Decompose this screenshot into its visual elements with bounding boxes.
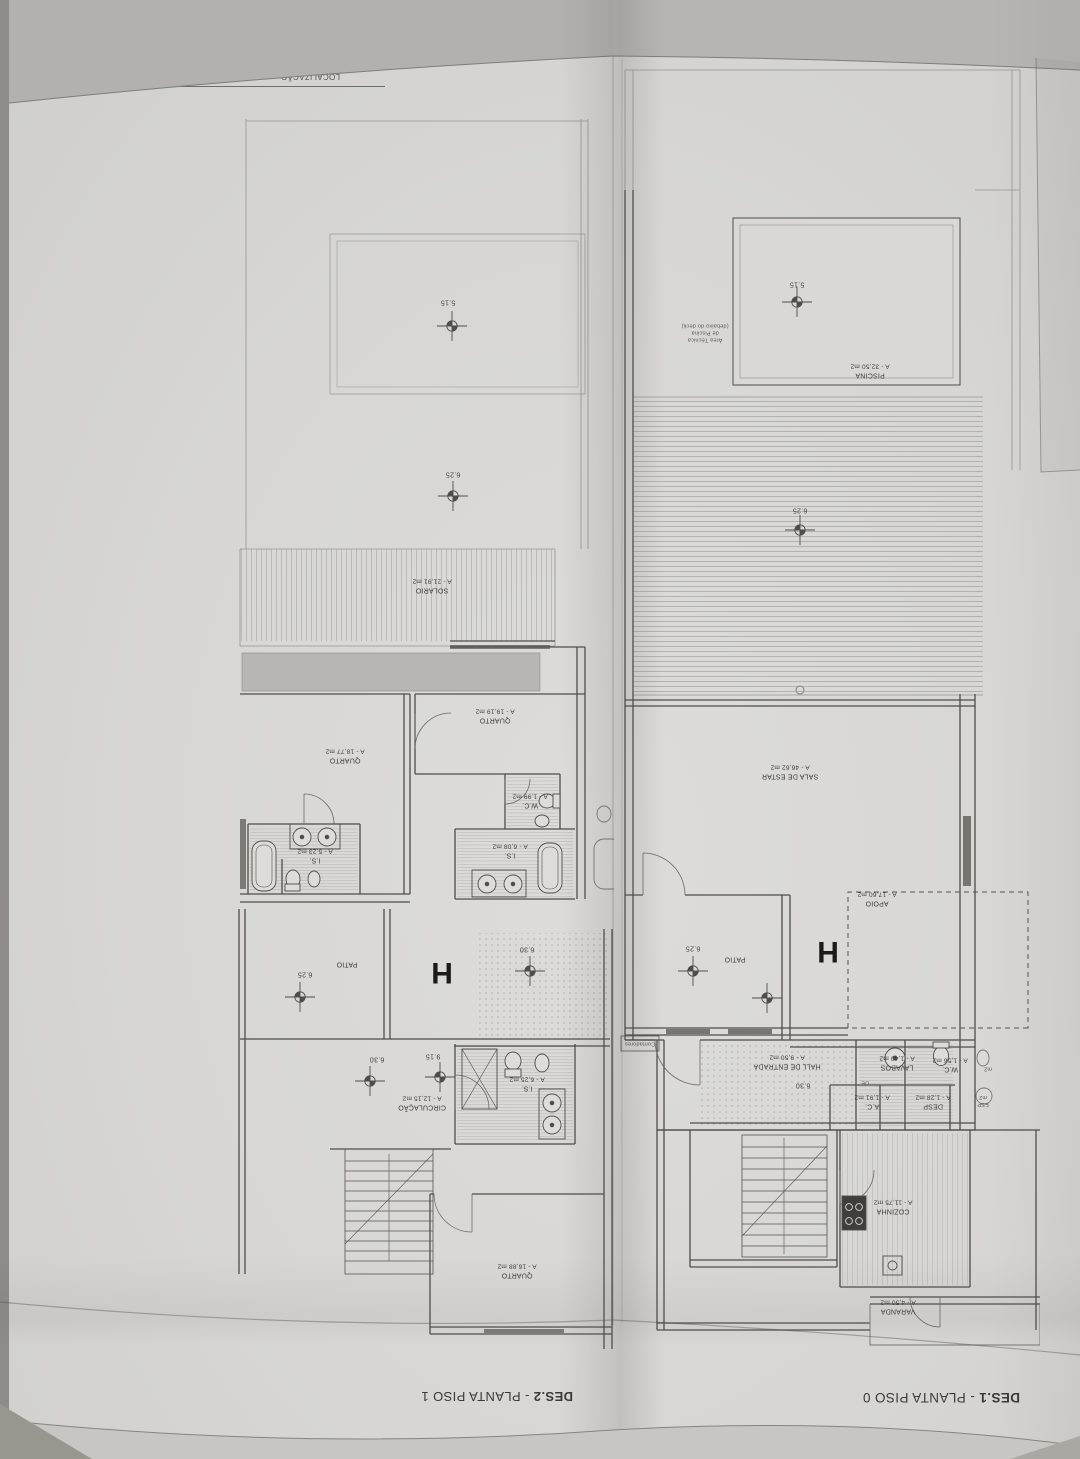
room-label-patio-piso0: PATIO bbox=[725, 954, 746, 971]
level-hall-piso1: 6.30 bbox=[520, 946, 535, 953]
localizacao-label: LOCALIZAÇÃO bbox=[281, 72, 340, 81]
room-label-piscina: PISCINAA - 32,50 m2 bbox=[850, 362, 889, 387]
room-label-patio-piso1: PATIO bbox=[337, 959, 358, 976]
photo-of-architectural-sheet: VARANDAA - 4,50 m2 COZINHAA - 11,75 m2 D… bbox=[0, 0, 1080, 1459]
room-label-is2: I.S.A - 5,23 m2 bbox=[297, 847, 332, 872]
room-label-hall: HALL DE ENTRADAA - 9,50 m2 bbox=[753, 1053, 820, 1078]
room-label-varanda: VARANDAA - 4,50 m2 bbox=[880, 1298, 915, 1323]
room-label-solario: SOLARIOA - 21,91 m2 bbox=[412, 577, 451, 602]
level-stair-top: 6.30 bbox=[370, 1056, 385, 1063]
note-area-tecnica: Área Técnica de Piscina (debaixo do deck… bbox=[681, 321, 728, 342]
title-block-rule bbox=[0, 86, 385, 87]
neighbor-fragment-top: m2 bbox=[984, 1064, 992, 1071]
level-terrace-piso1: 6.25 bbox=[446, 471, 461, 478]
neighbor-fragment-bottom: ESP m2 bbox=[977, 1093, 989, 1107]
level-piscina: 5.15 bbox=[790, 281, 805, 288]
room-label-is3: I.S.A - 6,25 m2 bbox=[509, 1075, 544, 1100]
room-label-cozinha: COZINHAA - 11,75 m2 bbox=[874, 1198, 913, 1223]
solario-hatch bbox=[240, 549, 555, 641]
room-label-is1: I.S.A - 6,08 m2 bbox=[492, 842, 527, 867]
room-label-wc-piso0: W.C.A - 1,56 m2 bbox=[932, 1056, 967, 1081]
room-label-quarto1: QUARTOA - 19,19 m2 bbox=[475, 707, 514, 732]
deck-hatch bbox=[633, 397, 983, 695]
room-label-ac: A.C.A - 1,91 m2 bbox=[854, 1093, 889, 1118]
room-label-lavabos: LAVABOSA - 1,40 m2 bbox=[879, 1054, 914, 1079]
label-contadores: Contadores bbox=[625, 1039, 655, 1046]
room-label-quarto2: QUARTOA - 18,77 m2 bbox=[325, 747, 364, 772]
localizacao-value: LOTE 4 bbox=[180, 72, 215, 83]
floor-plan-piso-0 bbox=[620, 64, 1040, 1354]
pergola-band bbox=[242, 653, 540, 691]
fracao-value: FRAÇÃO "H"_MORAD bbox=[45, 56, 150, 67]
room-label-circulacao: CIRCULAÇÃOA - 12,15 m2 bbox=[398, 1094, 446, 1119]
level-deck: 6.25 bbox=[793, 507, 808, 514]
stairs-piso0 bbox=[742, 1135, 827, 1257]
descricao-label: DESCRIÇÃO bbox=[260, 33, 310, 42]
room-label-sala: SALA DE ESTARA - 46,62 m2 bbox=[762, 763, 819, 788]
title-block-rule bbox=[0, 47, 385, 48]
level-hall-piso0: 6.30 bbox=[796, 1082, 811, 1089]
drawing-title-des1: DES.1 - PLANTA PISO 0 bbox=[863, 1390, 1020, 1405]
level-pool-piso1: 5.15 bbox=[441, 299, 456, 306]
stairs-piso1 bbox=[345, 1149, 433, 1274]
level-stair-mid: 9.15 bbox=[426, 1053, 441, 1060]
level-patio-piso1: 6.25 bbox=[298, 971, 313, 978]
room-label-desp: DESPA - 1,28 m2 bbox=[915, 1093, 950, 1118]
room-label-wc-piso1: W.C.A - 1,99 m2 bbox=[512, 792, 547, 817]
drawing-sheet: VARANDAA - 4,50 m2 COZINHAA - 11,75 m2 D… bbox=[0, 0, 1080, 1459]
room-label-apoio: APOIOA - 17,60 m2 bbox=[857, 890, 896, 915]
fraction-letter-piso1: H bbox=[431, 955, 453, 989]
fraction-letter-piso0: H bbox=[817, 934, 839, 968]
label-de: DE bbox=[861, 1078, 869, 1085]
room-label-quarto3: QUARTOA - 16,88 m2 bbox=[497, 1262, 536, 1287]
window-marks bbox=[666, 816, 971, 1034]
level-patio-piso0: 6.25 bbox=[686, 945, 701, 952]
descricao-value: PLANTAS_ARQUITETU bbox=[125, 33, 235, 44]
floor-plan-piso-1 bbox=[229, 114, 614, 1349]
swimming-pool bbox=[733, 218, 960, 385]
drawing-title-des2: DES.2 - PLANTA PISO 1 bbox=[421, 1389, 573, 1404]
